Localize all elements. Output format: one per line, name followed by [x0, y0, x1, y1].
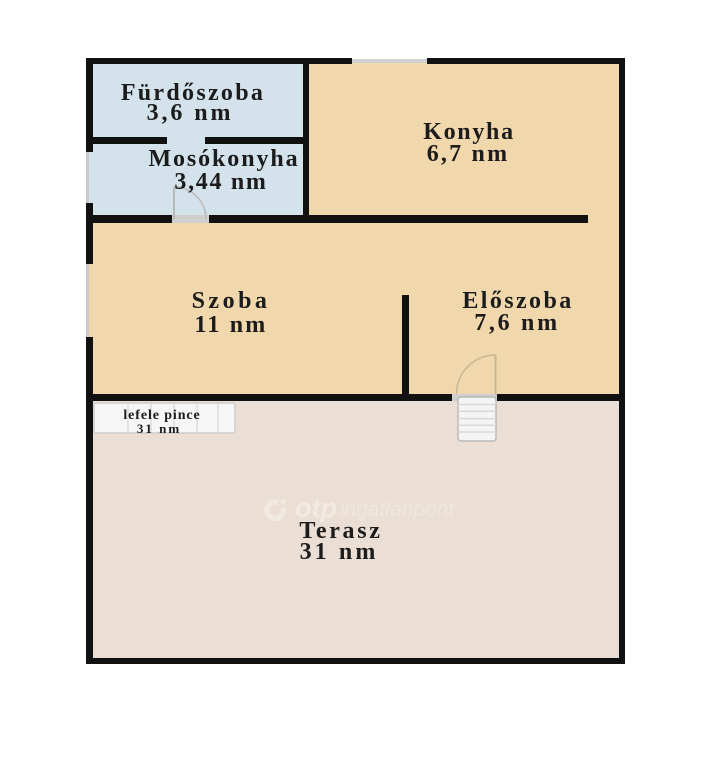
svg-text:31 nm: 31 nm	[300, 539, 379, 565]
svg-text:6,7 nm: 6,7 nm	[427, 141, 510, 167]
svg-text:31 nm: 31 nm	[137, 421, 181, 436]
svg-text:3,44 nm: 3,44 nm	[174, 169, 267, 195]
svg-text:3,6 nm: 3,6 nm	[147, 100, 234, 126]
svg-text:11 nm: 11 nm	[194, 312, 267, 338]
svg-text:7,6 nm: 7,6 nm	[474, 310, 560, 336]
svg-text:Szoba: Szoba	[192, 288, 271, 314]
